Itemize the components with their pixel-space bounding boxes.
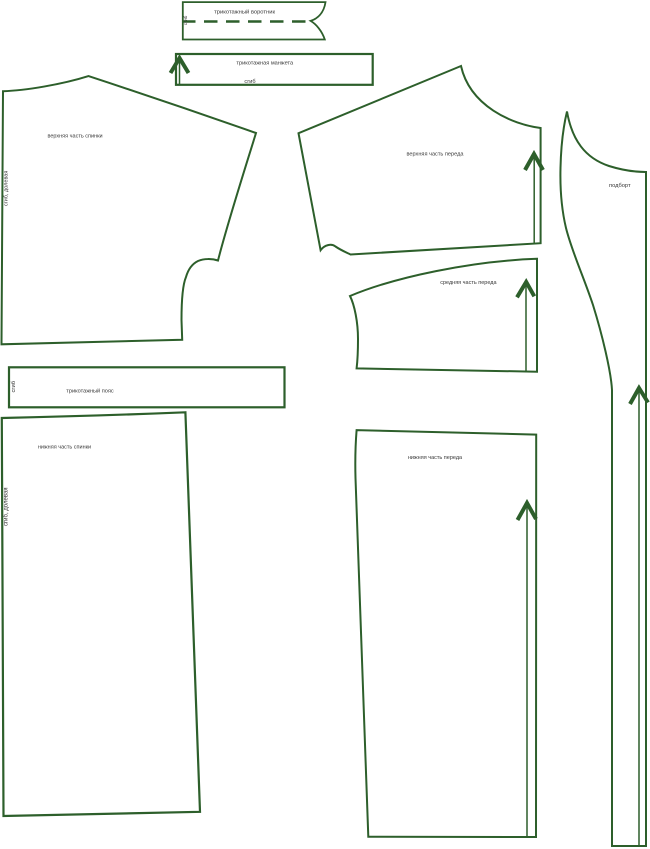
svg-text:сгиб: сгиб	[244, 79, 255, 85]
svg-text:нижняя часть спинки: нижняя часть спинки	[38, 444, 91, 450]
svg-text:нижняя часть переда: нижняя часть переда	[408, 455, 463, 461]
svg-text:сгиб: сгиб	[183, 15, 189, 25]
svg-text:сгиб, долевая: сгиб, долевая	[3, 171, 9, 206]
svg-text:трикотажный пояс: трикотажный пояс	[66, 387, 114, 394]
svg-text:верхняя часть переда: верхняя часть переда	[406, 151, 464, 157]
svg-text:трикотажная манжета: трикотажная манжета	[236, 60, 294, 66]
svg-text:средняя часть переда: средняя часть переда	[440, 280, 497, 286]
svg-text:сгиб: сгиб	[11, 380, 17, 392]
svg-text:трикотажный воротник: трикотажный воротник	[214, 9, 275, 16]
svg-text:сгиб, долевая: сгиб, долевая	[3, 487, 9, 526]
svg-text:подборт: подборт	[609, 183, 631, 189]
svg-text:верхняя часть спинки: верхняя часть спинки	[47, 134, 102, 140]
